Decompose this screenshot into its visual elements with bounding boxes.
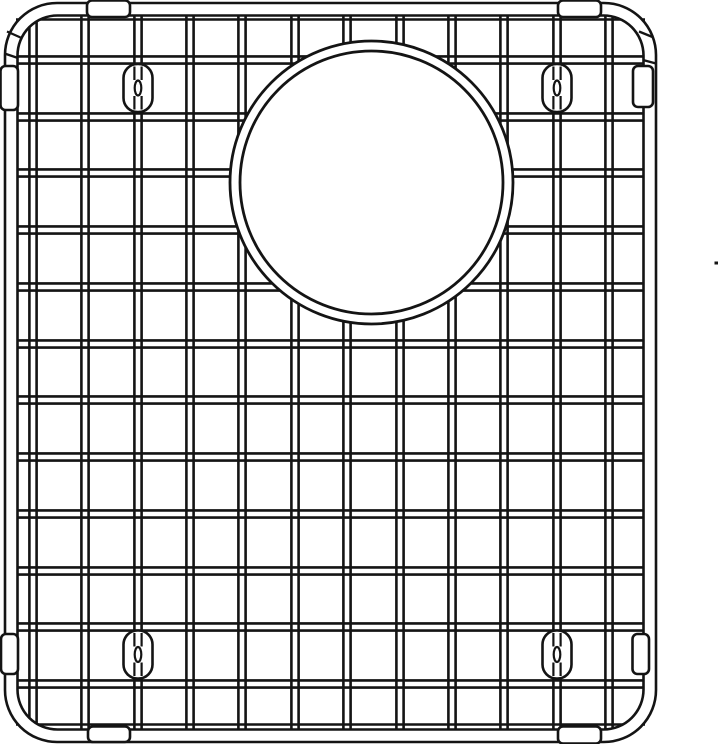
bumper-top-left <box>87 1 130 18</box>
foot-wire-link-top-left <box>135 81 142 96</box>
foot-wire-link-bottom-left <box>135 647 142 662</box>
bumper-right-top <box>633 66 653 107</box>
foot-wire-link-bottom-right <box>554 647 561 662</box>
bumper-bottom-right <box>558 727 601 744</box>
sink-grid-svg <box>0 0 720 744</box>
page <box>0 0 720 744</box>
bumper-left-top <box>1 66 19 110</box>
foot-wire-link-top-right <box>554 81 561 96</box>
foot-clip-bottom-right <box>543 631 572 679</box>
foot-clip-bottom-left <box>124 631 153 679</box>
bumper-top-right <box>558 1 601 18</box>
drain-opening <box>230 41 513 324</box>
stray-mark <box>715 262 719 265</box>
bumper-right-bottom <box>633 634 650 674</box>
foot-clip-top-left <box>124 64 153 112</box>
sink-grid-line-drawing <box>0 0 720 744</box>
bumper-bottom-left <box>88 727 130 743</box>
bumper-left-bottom <box>1 634 18 674</box>
foot-clip-top-right <box>543 64 572 112</box>
